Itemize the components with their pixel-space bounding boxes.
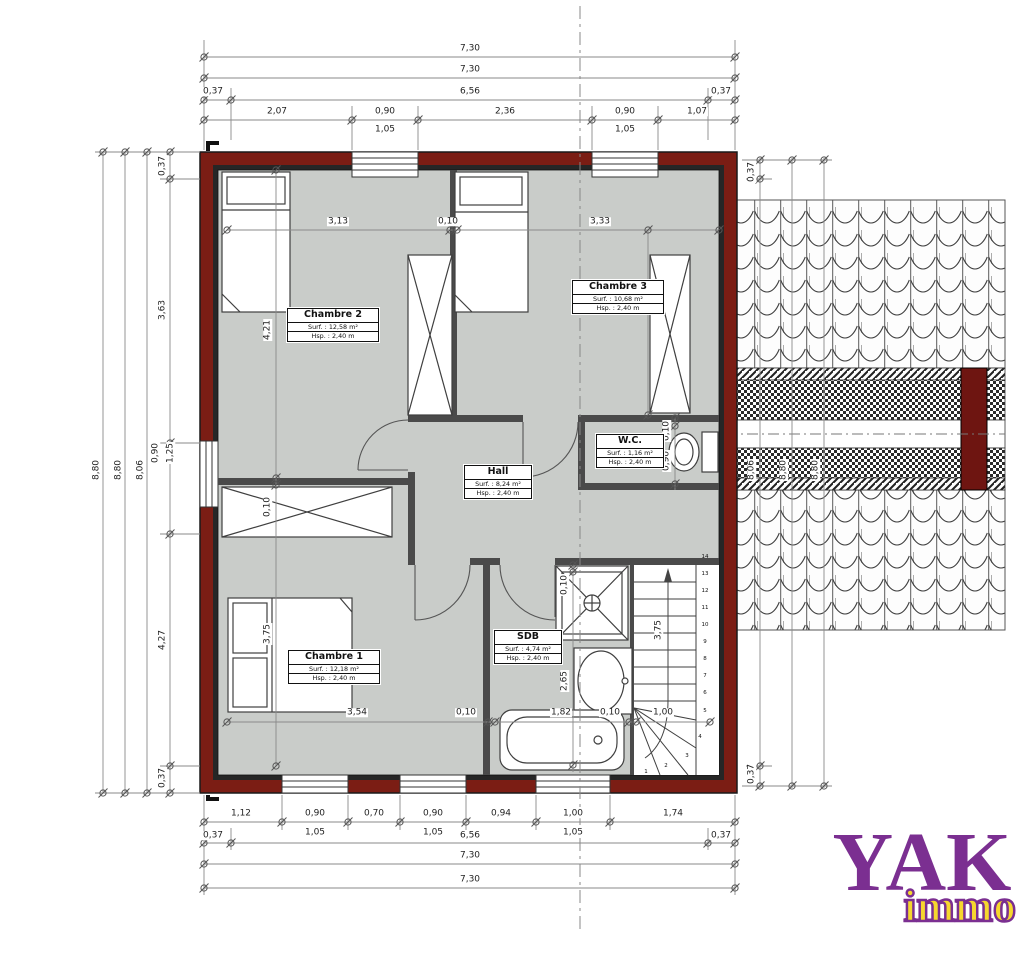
- dim-label: 0,37: [710, 87, 732, 96]
- dim-label: 1,00: [562, 809, 584, 818]
- dim-label: 3,33: [589, 217, 611, 226]
- room-label-chambre-1: Chambre 1 Surf. : 12,18 m² Hsp. : 2,40 m: [288, 650, 380, 684]
- stair-step-number: 13: [702, 571, 709, 577]
- dim-label: 1,05: [614, 125, 636, 134]
- room-surface: Surf. : 12,58 m²: [288, 323, 378, 332]
- room-ceiling-height: Hsp. : 2,40 m: [495, 654, 561, 662]
- dim-label: 0,90: [304, 809, 326, 818]
- room-label-chambre-2: Chambre 2 Surf. : 12,58 m² Hsp. : 2,40 m: [287, 308, 379, 342]
- room-ceiling-height: Hsp. : 2,40 m: [288, 332, 378, 340]
- dim-label: 0,70: [363, 809, 385, 818]
- dim-label: 3,13: [327, 217, 349, 226]
- dim-label: 0,10: [599, 708, 621, 717]
- room-surface: Surf. : 1,16 m²: [597, 449, 663, 458]
- dim-label: 0,90: [374, 107, 396, 116]
- dim-label: 0,90: [151, 442, 160, 464]
- dim-label: 8,80: [114, 459, 123, 481]
- dim-label: 1,05: [422, 828, 444, 837]
- dim-label: 4,21: [263, 319, 272, 341]
- stairs: [634, 565, 719, 775]
- brand-logo: YAK immo: [824, 824, 1020, 934]
- room-label-sdb: SDB Surf. : 4,74 m² Hsp. : 2,40 m: [494, 630, 562, 664]
- dim-label: 1,00: [652, 708, 674, 717]
- dim-label: 7,30: [459, 851, 481, 860]
- dim-label: 0,10: [437, 217, 459, 226]
- dim-label: 1,25: [166, 442, 175, 464]
- dim-label: 1,07: [686, 107, 708, 116]
- dim-label: 8,06: [136, 459, 145, 481]
- dim-label: 7,30: [459, 44, 481, 53]
- room-name: SDB: [495, 631, 561, 645]
- stair-step-number: 14: [702, 554, 709, 560]
- floor-plan-canvas: 7,307,300,376,560,372,070,902,360,901,07…: [0, 0, 1024, 958]
- dim-label: 8,80: [92, 459, 101, 481]
- stair-step-number: 10: [702, 622, 709, 628]
- room-ceiling-height: Hsp. : 2,40 m: [289, 674, 379, 682]
- dim-label: 8,80: [811, 459, 820, 481]
- dim-label: 0,37: [202, 87, 224, 96]
- dim-label: 8,80: [779, 459, 788, 481]
- dim-label: 6,56: [459, 87, 481, 96]
- stair-step-number: 3: [685, 753, 689, 759]
- dim-label: 3,54: [346, 708, 368, 717]
- room-name: Chambre 2: [288, 309, 378, 323]
- stair-step-number: 2: [664, 763, 668, 769]
- dim-label: 1,82: [550, 708, 572, 717]
- dim-label: 4,27: [158, 629, 167, 651]
- room-ceiling-height: Hsp. : 2,40 m: [597, 458, 663, 466]
- dim-label: 1,05: [562, 828, 584, 837]
- dim-label: 0,37: [202, 831, 224, 840]
- room-ceiling-height: Hsp. : 2,40 m: [573, 304, 663, 312]
- dim-label: 1,12: [230, 809, 252, 818]
- room-name: Chambre 3: [573, 281, 663, 295]
- room-label-hall: Hall Surf. : 8,24 m² Hsp. : 2,40 m: [464, 465, 532, 499]
- stair-step-number: 7: [703, 673, 707, 679]
- dim-label: 2,07: [266, 107, 288, 116]
- stair-step-number: 9: [703, 639, 707, 645]
- stair-step-number: 4: [698, 734, 702, 740]
- room-label-w-c-: W.C. Surf. : 1,16 m² Hsp. : 2,40 m: [596, 434, 664, 468]
- dim-label: 3,63: [158, 299, 167, 321]
- dim-label: 7,30: [459, 875, 481, 884]
- dim-label: 1,05: [304, 828, 326, 837]
- room-surface: Surf. : 10,68 m²: [573, 295, 663, 304]
- dim-label: 0,37: [747, 763, 756, 785]
- roof-section: [705, 200, 1005, 630]
- stair-step-number: 5: [703, 708, 707, 714]
- room-surface: Surf. : 8,24 m²: [465, 480, 531, 489]
- dim-label: 0,37: [710, 831, 732, 840]
- dim-label: 0,10: [263, 496, 272, 518]
- room-surface: Surf. : 12,18 m²: [289, 665, 379, 674]
- stair-step-number: 12: [702, 588, 709, 594]
- room-ceiling-height: Hsp. : 2,40 m: [465, 489, 531, 497]
- dim-label: 0,10: [455, 708, 477, 717]
- dim-label: 0,90: [422, 809, 444, 818]
- stair-step-number: 8: [703, 656, 707, 662]
- stair-step-number: 6: [703, 690, 707, 696]
- room-surface: Surf. : 4,74 m²: [495, 645, 561, 654]
- room-name: Hall: [465, 466, 531, 480]
- dim-label: 8,06: [747, 459, 756, 481]
- dim-label: 1,74: [662, 809, 684, 818]
- dim-label: 2,65: [560, 670, 569, 692]
- dim-label: 1,05: [374, 125, 396, 134]
- room-name: Chambre 1: [289, 651, 379, 665]
- dim-label: 0,37: [158, 767, 167, 789]
- dim-label: 3,75: [654, 619, 663, 641]
- room-label-chambre-3: Chambre 3 Surf. : 10,68 m² Hsp. : 2,40 m: [572, 280, 664, 314]
- dim-label: 7,30: [459, 65, 481, 74]
- dim-label: 0,94: [490, 809, 512, 818]
- dim-label: 0,90: [614, 107, 636, 116]
- dim-label: 3,75: [263, 623, 272, 645]
- dim-label: 2,36: [494, 107, 516, 116]
- dim-label: 0,37: [158, 155, 167, 177]
- dim-label: 0,10: [560, 574, 569, 596]
- stair-step-number: 11: [702, 605, 709, 611]
- room-name: W.C.: [597, 435, 663, 449]
- stair-step-number: 1: [644, 769, 648, 775]
- dim-label: 0,37: [747, 161, 756, 183]
- dim-label: 6,56: [459, 831, 481, 840]
